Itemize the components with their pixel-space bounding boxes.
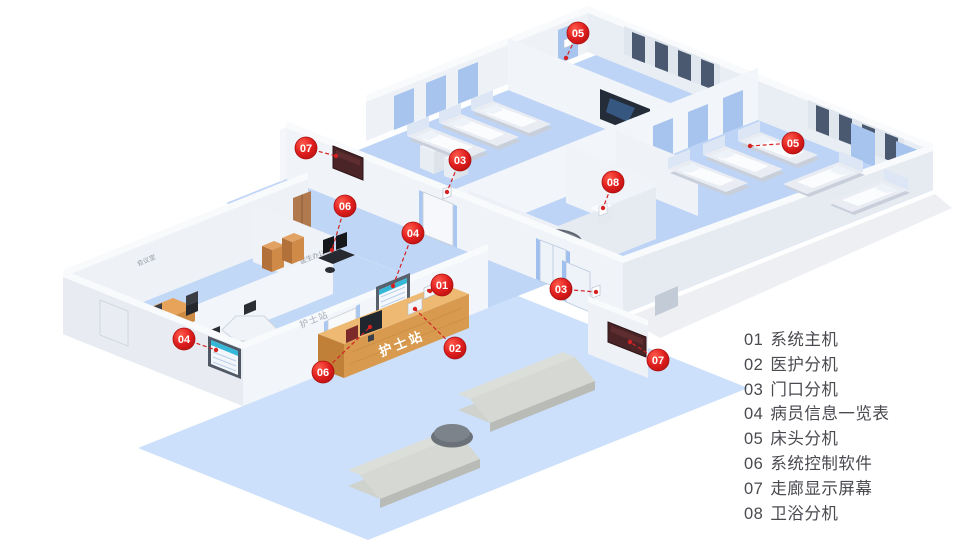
legend-item: 01系统主机 bbox=[744, 328, 889, 353]
legend: 01系统主机 02医护分机 03门口分机 04病员信息一览表 05床头分机 06… bbox=[744, 328, 889, 526]
callout-badge-05b: 05 bbox=[782, 132, 804, 154]
callout-badge-07: 07 bbox=[295, 137, 317, 159]
svg-text:02: 02 bbox=[449, 343, 461, 355]
svg-text:03: 03 bbox=[454, 155, 466, 167]
svg-text:04: 04 bbox=[178, 334, 191, 346]
svg-text:01: 01 bbox=[436, 280, 448, 292]
callout-badge-04b: 04 bbox=[173, 328, 195, 350]
callout-badge-06: 06 bbox=[334, 195, 356, 217]
legend-item: 06系统控制软件 bbox=[744, 452, 889, 477]
callout-badge-03b: 03 bbox=[550, 278, 572, 300]
callout-badge-01: 01 bbox=[431, 274, 453, 296]
legend-item: 02医护分机 bbox=[744, 353, 889, 378]
ward-intercom-diagram: 会议室 护理部 医生办公室 bbox=[0, 0, 965, 547]
svg-text:06: 06 bbox=[339, 201, 351, 213]
legend-item: 07走廊显示屏幕 bbox=[744, 477, 889, 502]
svg-text:05: 05 bbox=[572, 28, 584, 40]
svg-text:04: 04 bbox=[407, 228, 420, 240]
svg-text:07: 07 bbox=[300, 143, 312, 155]
callout-badge-05: 05 bbox=[567, 22, 589, 44]
svg-text:03: 03 bbox=[555, 284, 567, 296]
callout-badge-03: 03 bbox=[449, 149, 471, 171]
callout-badge-07b: 07 bbox=[647, 349, 669, 371]
legend-item: 08卫浴分机 bbox=[744, 502, 889, 527]
svg-text:06: 06 bbox=[317, 367, 329, 379]
callout-badge-04: 04 bbox=[402, 222, 424, 244]
svg-text:07: 07 bbox=[652, 355, 664, 367]
legend-item: 03门口分机 bbox=[744, 378, 889, 403]
callout-badge-06b: 06 bbox=[312, 361, 334, 383]
legend-item: 05床头分机 bbox=[744, 427, 889, 452]
legend-item: 04病员信息一览表 bbox=[744, 402, 889, 427]
callout-badge-02: 02 bbox=[444, 337, 466, 359]
svg-text:08: 08 bbox=[607, 177, 619, 189]
callout-badge-08: 08 bbox=[602, 171, 624, 193]
svg-text:05: 05 bbox=[787, 138, 799, 150]
